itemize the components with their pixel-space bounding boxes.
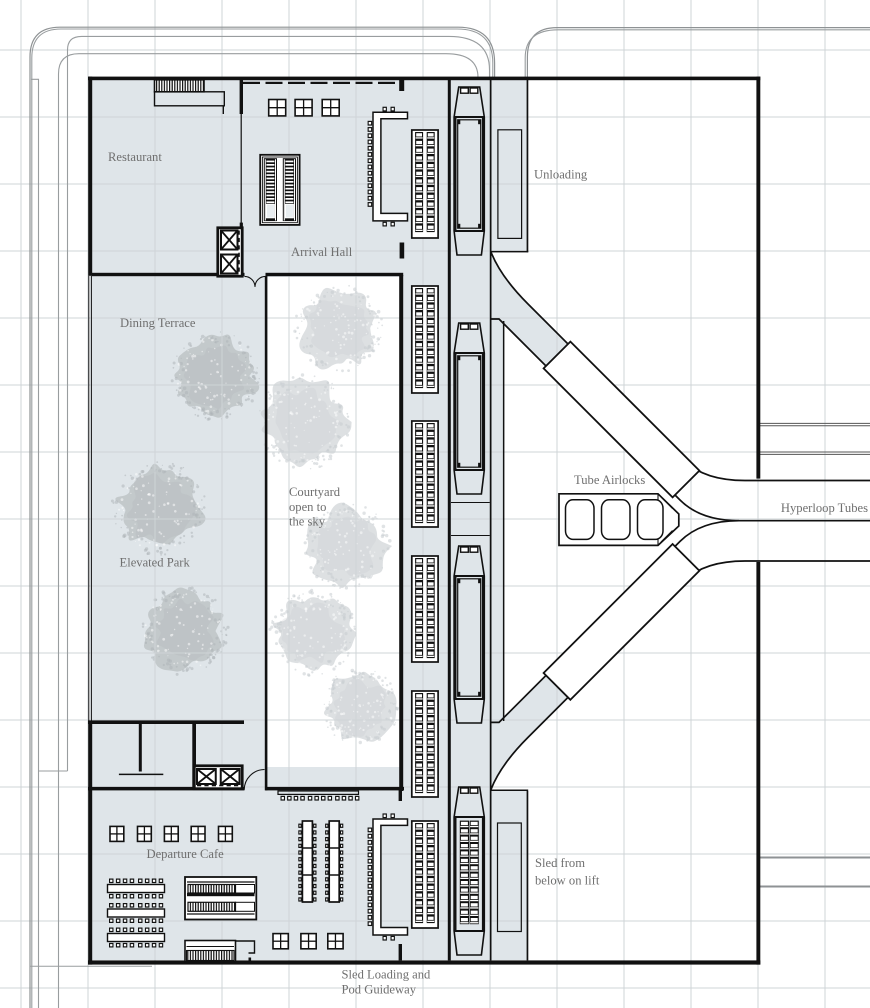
svg-text:Unloading: Unloading [534, 168, 588, 182]
svg-text:Departure Cafe: Departure Cafe [147, 847, 225, 861]
svg-text:Elevated Park: Elevated Park [120, 556, 191, 570]
svg-text:Pod Guideway: Pod Guideway [342, 983, 417, 997]
svg-text:Courtyard: Courtyard [289, 485, 341, 499]
svg-text:Dining Terrace: Dining Terrace [120, 316, 196, 330]
svg-text:below on lift: below on lift [535, 874, 600, 888]
svg-text:open to: open to [289, 500, 326, 514]
svg-text:Sled Loading and: Sled Loading and [342, 968, 432, 982]
svg-text:Sled from: Sled from [535, 856, 585, 870]
svg-text:the sky: the sky [289, 515, 326, 529]
svg-text:Hyperloop Tubes: Hyperloop Tubes [781, 501, 868, 515]
svg-text:Restaurant: Restaurant [108, 150, 162, 164]
svg-text:Tube Airlocks: Tube Airlocks [574, 473, 645, 487]
svg-text:Arrival Hall: Arrival Hall [291, 245, 353, 259]
